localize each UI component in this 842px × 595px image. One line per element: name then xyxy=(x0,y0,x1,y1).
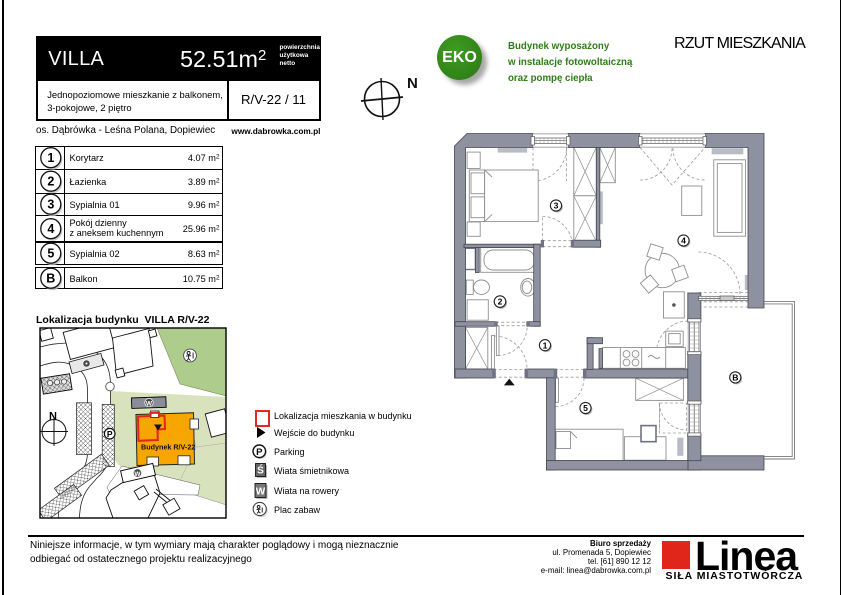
svg-text:4: 4 xyxy=(47,222,54,236)
svg-text:2: 2 xyxy=(47,175,54,189)
svg-text:2: 2 xyxy=(498,297,503,307)
svg-text:Ś: Ś xyxy=(257,464,264,477)
svg-text:P: P xyxy=(107,429,113,439)
svg-text:5: 5 xyxy=(47,247,54,261)
svg-text:B: B xyxy=(732,373,738,383)
svg-text:W: W xyxy=(146,400,153,407)
svg-text:3: 3 xyxy=(554,201,559,211)
svg-text:W: W xyxy=(256,487,266,498)
svg-text:5: 5 xyxy=(583,403,588,413)
svg-text:1: 1 xyxy=(47,151,54,165)
svg-text:P: P xyxy=(256,447,263,458)
svg-text:4: 4 xyxy=(681,236,686,246)
svg-text:3: 3 xyxy=(47,198,54,212)
svg-text:N: N xyxy=(49,411,57,423)
svg-text:B: B xyxy=(46,272,55,286)
svg-text:W: W xyxy=(134,471,141,478)
svg-text:Budynek R/V-22: Budynek R/V-22 xyxy=(141,443,195,452)
svg-text:N: N xyxy=(407,75,418,92)
svg-text:1: 1 xyxy=(543,340,548,350)
